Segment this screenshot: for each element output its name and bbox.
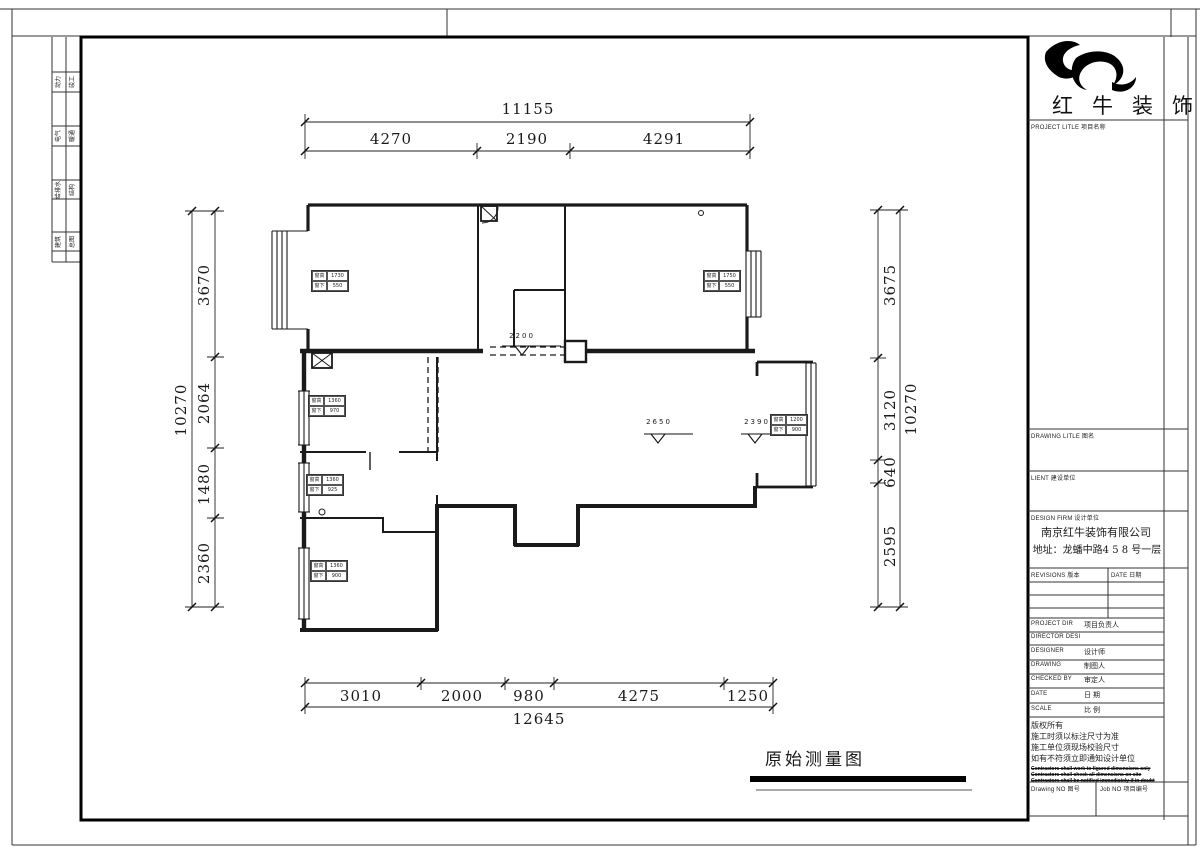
tag-h-label: 窗高 (309, 396, 324, 406)
tag-h-label: 窗高 (311, 561, 326, 571)
tb-row-drawing-cn: 制图人 (1084, 661, 1105, 671)
tag-h-label: 窗高 (307, 475, 322, 485)
dim-bottom-3: 980 (469, 687, 589, 705)
tb-row-director-en: DIRECTOR DESI (1031, 634, 1081, 640)
tag-s-label: 窗下 (309, 406, 324, 416)
tb-row-scale-en: SCALE (1031, 706, 1052, 712)
tb-row-checked-en: CHECKED BY (1031, 676, 1072, 682)
dim-bottom-total: 12645 (479, 710, 599, 728)
tb-address: 地址：龙蟠中路4 5 8 号一层 (1026, 541, 1168, 556)
tag-s-label: 窗下 (704, 281, 719, 291)
bull-logo-icon (1045, 41, 1136, 92)
tb-row-date-cn: 日 期 (1084, 690, 1100, 700)
fold-label-8: 总图 (67, 231, 79, 253)
dim-bottom-4: 4275 (579, 687, 699, 705)
caption-underline (750, 776, 972, 791)
tag-s-label: 窗下 (771, 425, 786, 435)
window-tag-4: 窗高1360 窗下925 (306, 474, 344, 496)
dim-right-4: 2595 (881, 486, 899, 606)
dim-bottom-5: 1250 (688, 687, 808, 705)
tag-s-value: 925 (322, 485, 343, 495)
fold-label-4: 暖通 (67, 125, 79, 147)
tb-note-1: 版权所有 (1031, 720, 1063, 731)
window-tag-1: 窗高1730 窗下550 (311, 270, 349, 292)
tb-job-no-label: Job NO 项目编号 (1100, 784, 1148, 793)
tag-h-label: 窗高 (312, 271, 327, 281)
level-label-2200: 2200 (482, 332, 562, 340)
tb-row-checked-cn: 审定人 (1084, 675, 1105, 685)
tb-drawing-label: DRAWING LITLE 图名 (1031, 431, 1094, 440)
tb-row-projectdir-cn: 项目负责人 (1084, 620, 1119, 630)
tag-h-label: 窗高 (771, 415, 786, 425)
fold-label-1: 动力 (53, 71, 65, 93)
fold-label-6: 结构 (67, 179, 79, 201)
fold-label-2: 竣工 (67, 71, 79, 93)
tb-drawing-no-label: Drawing NO 图号 (1031, 784, 1080, 793)
tb-note-3: 施工单位须现场校验尺寸 (1031, 742, 1119, 753)
tb-row-designer-en: DESIGNER (1031, 648, 1064, 654)
tb-row-designer-cn: 设计师 (1084, 647, 1105, 657)
tag-h-value: 1360 (324, 396, 345, 406)
window-tag-3: 窗高1360 窗下970 (308, 395, 346, 417)
tb-row-drawing-en: DRAWING (1031, 662, 1061, 668)
dim-top-1: 4270 (331, 130, 451, 148)
tag-h-value: 1200 (786, 415, 807, 425)
level-label-2650: 2650 (619, 418, 699, 426)
tb-row-date-en: DATE (1031, 691, 1047, 697)
tb-row-projectdir-en: PROJECT DIR (1031, 621, 1073, 627)
tag-s-value: 550 (719, 281, 740, 291)
dim-left-total: 10270 (172, 350, 190, 470)
tag-h-value: 1360 (322, 475, 343, 485)
window-tag-5: 窗高1360 窗下900 (310, 560, 348, 582)
tb-company: 南京红牛装饰有限公司 (1028, 524, 1164, 540)
tb-date-col-label: DATE 日期 (1111, 570, 1142, 579)
tb-revisions-label: REVISIONS 版本 (1031, 570, 1080, 579)
tag-s-label: 窗下 (312, 281, 327, 291)
tb-row-scale-cn: 比 例 (1084, 705, 1100, 715)
dim-left-4: 2360 (195, 503, 213, 623)
tag-h-value: 1750 (719, 271, 740, 281)
tag-s-value: 900 (326, 571, 347, 581)
fold-label-5: 给排水 (53, 179, 65, 201)
drawing-sheet: 11155 4270 2190 4291 3670 2064 1480 2360… (0, 0, 1200, 856)
dim-top-2: 2190 (467, 130, 587, 148)
tag-s-value: 550 (327, 281, 348, 291)
interior-walls (300, 205, 704, 533)
drawing-caption: 原始测量图 (730, 745, 900, 770)
tag-h-value: 1730 (327, 271, 348, 281)
tag-h-label: 窗高 (704, 271, 719, 281)
tag-s-label: 窗下 (311, 571, 326, 581)
tag-h-value: 1360 (326, 561, 347, 571)
dim-top-total: 11155 (468, 100, 588, 118)
brand-name: 红牛装饰 (1052, 90, 1200, 120)
tb-firm-label: DESIGN FIRM 设计单位 (1031, 513, 1099, 522)
dim-top-3: 4291 (604, 130, 724, 148)
level-markers (502, 346, 790, 443)
tag-s-value: 970 (324, 406, 345, 416)
fold-label-7: 建筑 (53, 231, 65, 253)
tag-s-label: 窗下 (307, 485, 322, 495)
tb-client-label: LIENT 建设单位 (1031, 473, 1076, 482)
fold-label-3: 电气 (53, 125, 65, 147)
tag-s-value: 900 (786, 425, 807, 435)
window-tag-2: 窗高1750 窗下550 (703, 270, 741, 292)
tb-note-4: 如有不符须立即通知设计单位 (1031, 753, 1135, 764)
dim-right-1: 3675 (881, 225, 899, 345)
tb-note-2: 施工时须以标注尺寸为准 (1031, 731, 1119, 742)
dim-left-1: 3670 (195, 225, 213, 345)
window-tag-6: 窗高1200 窗下900 (770, 414, 808, 436)
dim-right-total: 10270 (902, 349, 920, 469)
tb-project-label: PROJECT LITLE 项目名称 (1031, 122, 1106, 131)
